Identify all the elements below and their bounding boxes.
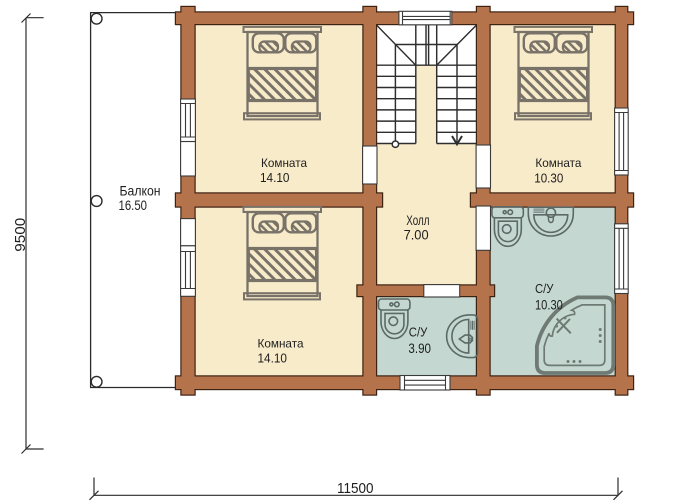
svg-text:14.10: 14.10 [260, 170, 290, 185]
svg-text:9500: 9500 [12, 218, 29, 252]
svg-text:7.00: 7.00 [404, 227, 429, 242]
svg-text:14.10: 14.10 [258, 350, 288, 365]
svg-text:11500: 11500 [337, 480, 374, 497]
svg-text:Комната: Комната [535, 156, 581, 170]
svg-text:Холл: Холл [406, 212, 429, 228]
svg-text:3.90: 3.90 [408, 340, 431, 356]
svg-text:Комната: Комната [258, 337, 304, 351]
svg-text:16.50: 16.50 [119, 197, 148, 213]
svg-text:Комната: Комната [261, 156, 307, 170]
svg-text:С/У: С/У [535, 281, 554, 296]
svg-text:С/У: С/У [409, 324, 428, 339]
svg-text:10.30: 10.30 [535, 297, 563, 313]
svg-text:10.30: 10.30 [534, 170, 563, 185]
svg-text:Балкон: Балкон [120, 183, 161, 199]
